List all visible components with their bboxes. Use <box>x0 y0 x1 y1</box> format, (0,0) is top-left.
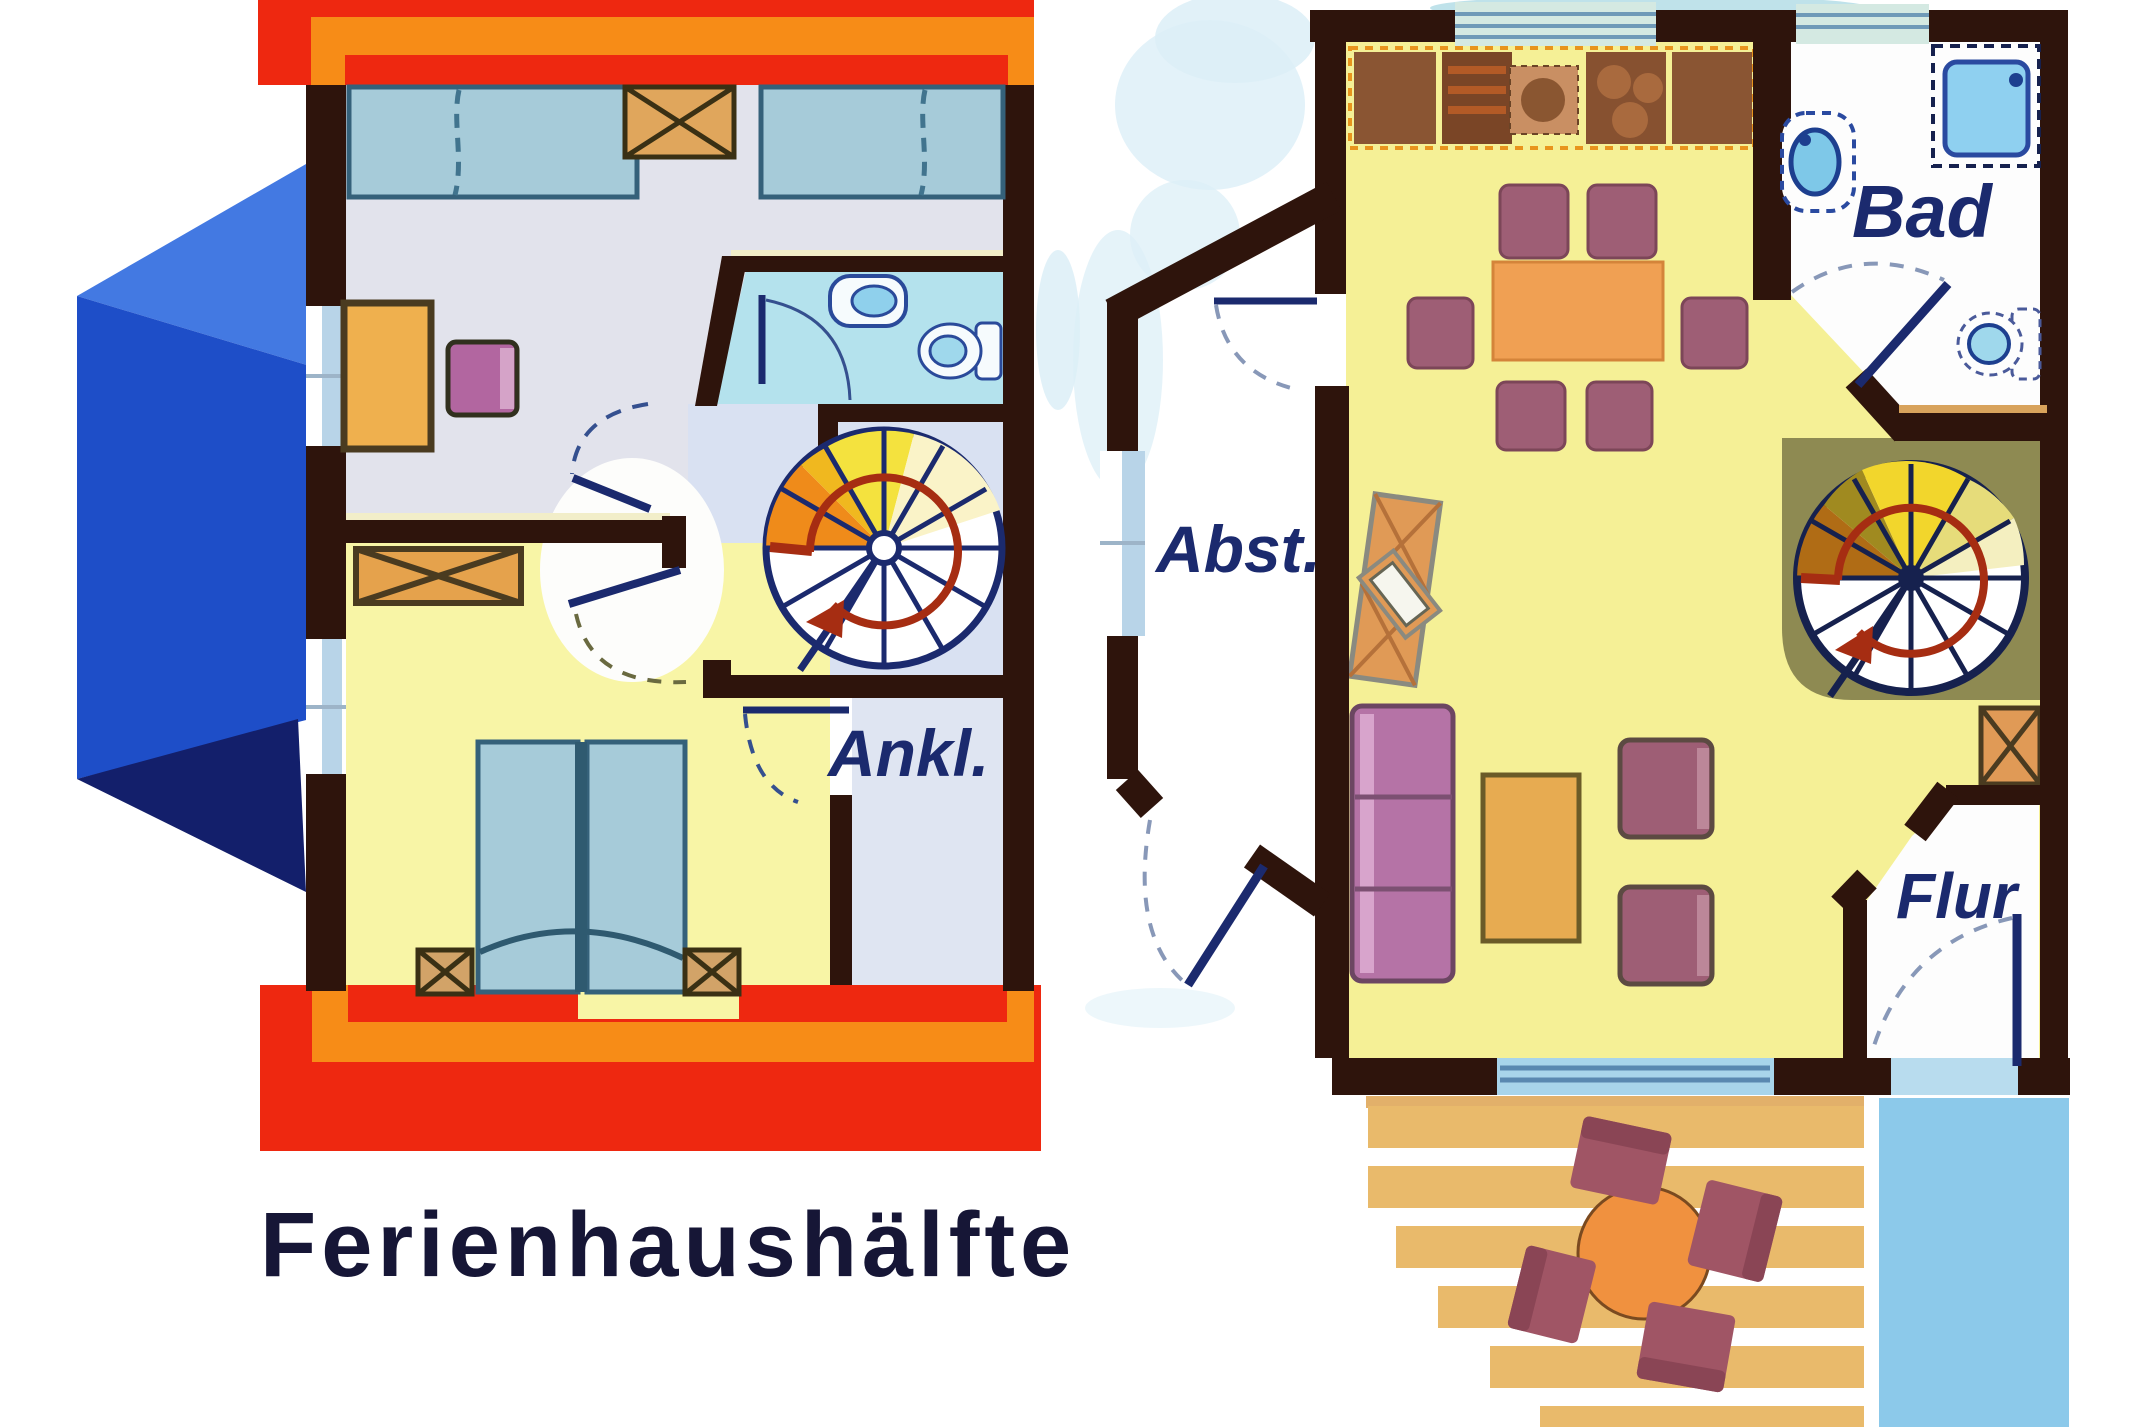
svg-text:Abst.: Abst. <box>1154 512 1321 586</box>
svg-text:Ferienhaushälfte: Ferienhaushälfte <box>260 1194 1076 1296</box>
svg-text:Flur: Flur <box>1896 860 2020 932</box>
svg-text:Bad: Bad <box>1852 170 1994 253</box>
svg-text:Ankl.: Ankl. <box>826 716 989 790</box>
